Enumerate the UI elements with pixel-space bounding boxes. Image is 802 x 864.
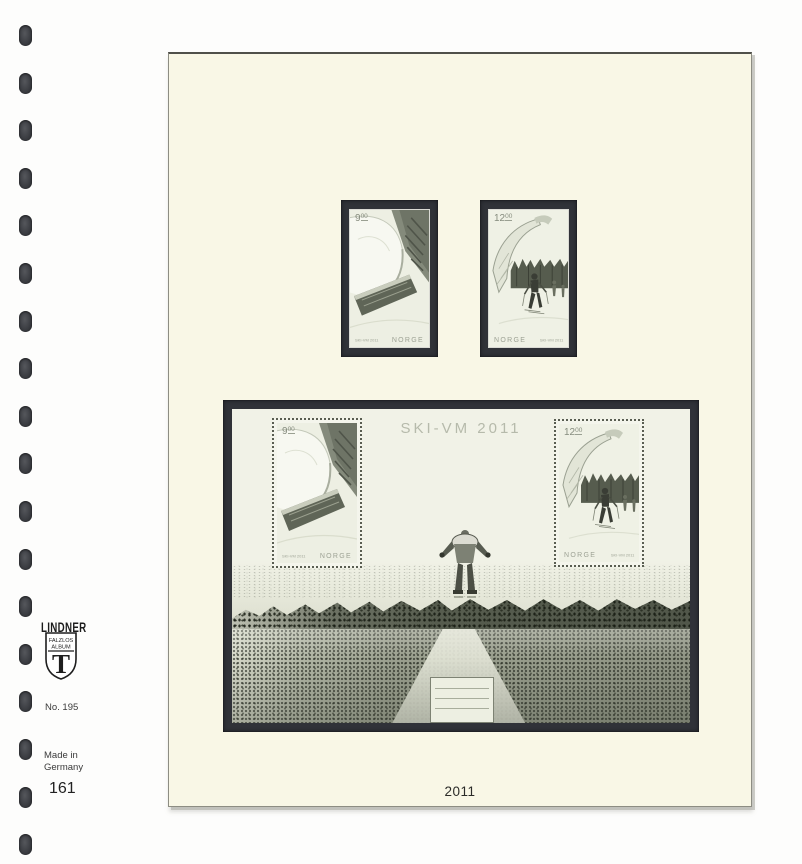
binder-hole [19, 25, 32, 46]
shield-text-falzlos: FALZLOS [49, 638, 74, 644]
sheet-stamp-12kr: 1200 NORGE SKI-VM 2011 [554, 419, 644, 567]
binder-hole [19, 501, 32, 522]
stamp-denomination: 900 [355, 213, 368, 224]
stamp-country: NORGE [564, 552, 596, 559]
stamp-country: NORGE [320, 553, 352, 560]
binder-hole [19, 263, 32, 284]
album-page: 900 SKI-VM 2011 NORGE [168, 52, 752, 807]
stamp-art-cross-country [489, 210, 568, 347]
binder-hole [19, 691, 32, 712]
shield-letter-t: T [52, 649, 70, 679]
binder-hole [19, 453, 32, 474]
page-number: 161 [49, 780, 76, 798]
stamp-art-ski-jump-hill [277, 423, 357, 563]
stamp-inscription: SKI-VM 2011 [611, 553, 635, 558]
stamp-art-ski-jump-hill [350, 210, 429, 347]
binder-hole [19, 73, 32, 94]
stamp-mount-9kr: 900 SKI-VM 2011 NORGE [341, 200, 438, 357]
binder-hole [19, 596, 32, 617]
made-in-label: Made in Germany [44, 750, 83, 774]
binder-hole [19, 120, 32, 141]
stamp-inscription: SKI-VM 2011 [540, 338, 564, 343]
stamp-inscription: SKI-VM 2011 [355, 338, 379, 343]
stamp-mount-12kr: 1200 NORGE SKI-VM 2011 [480, 200, 577, 357]
reference-number: No. 195 [45, 702, 78, 713]
souvenir-sheet: SKI-VM 2011 [232, 409, 690, 723]
sheet-stamp-9kr: 900 SKI-VM 2011 NORGE [272, 418, 362, 568]
stamp-country: NORGE [392, 337, 424, 344]
binder-hole [19, 644, 32, 665]
stamp-art-cross-country [559, 424, 639, 562]
lindner-shield-logo: FALZLOS ALBUM T [44, 632, 78, 680]
binder-hole [19, 406, 32, 427]
binder-hole [19, 311, 32, 332]
album-scan: LINDNER FALZLOS ALBUM T No. 195 Made in … [0, 0, 802, 864]
stamp-denomination: 1200 [564, 427, 582, 438]
stamp-denomination: 1200 [494, 213, 512, 224]
binder-hole [19, 834, 32, 855]
binder-hole [19, 168, 32, 189]
arena-building [430, 677, 494, 723]
stamp-9kr: 900 SKI-VM 2011 NORGE [350, 210, 429, 347]
year-caption: 2011 [169, 784, 751, 799]
ski-jumper-figure [437, 527, 493, 603]
stamp-country: NORGE [494, 337, 526, 344]
stamp-inscription: SKI-VM 2011 [282, 554, 306, 559]
souvenir-sheet-mount: SKI-VM 2011 [223, 400, 699, 732]
binder-hole [19, 549, 32, 570]
stamp-denomination: 900 [282, 426, 295, 437]
binder-hole [19, 215, 32, 236]
binder-hole [19, 739, 32, 760]
binder-hole [19, 358, 32, 379]
stamp-12kr: 1200 NORGE SKI-VM 2011 [489, 210, 568, 347]
binder-hole [19, 787, 32, 808]
